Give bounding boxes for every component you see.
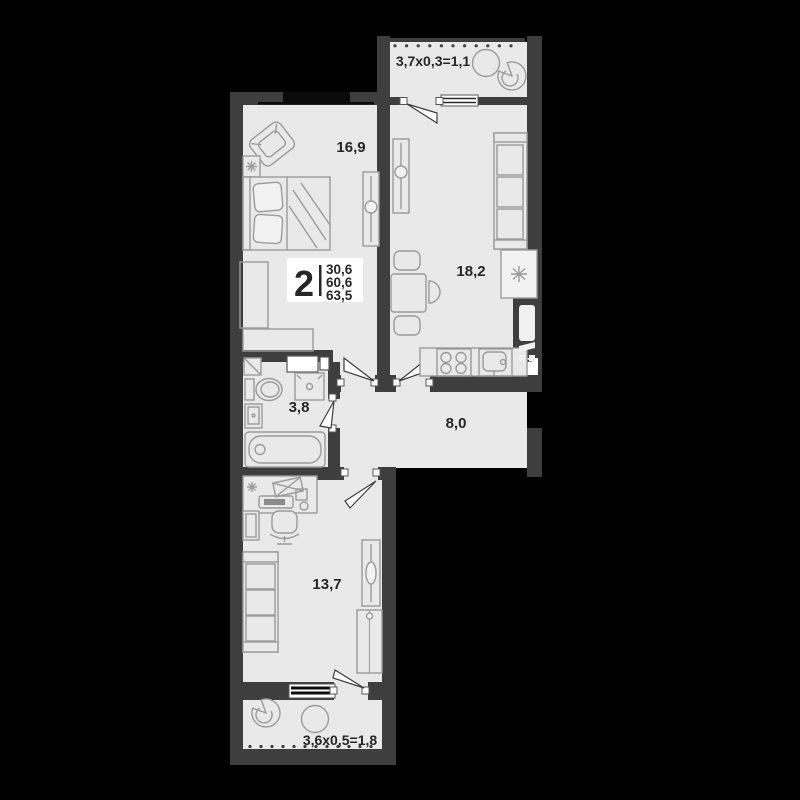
corner-shelf <box>244 358 261 375</box>
kitchen-counter <box>420 348 527 376</box>
side-shelf <box>243 511 259 540</box>
floorplan-canvas: 16,9 18,2 3,8 8,0 13,7 3,7х0,3=1,1 3,6х0… <box>0 0 800 800</box>
hallway-floor <box>340 390 527 468</box>
floorplan-svg: 16,9 18,2 3,8 8,0 13,7 3,7х0,3=1,1 3,6х0… <box>0 0 800 800</box>
washing-machine <box>295 373 324 400</box>
living-room-area-label: 13,7 <box>312 576 341 593</box>
kitchen-area-label: 18,2 <box>456 263 485 280</box>
fridge <box>501 250 537 298</box>
mirror-wardrobe <box>362 540 380 606</box>
hallway-area-label: 8,0 <box>446 415 467 432</box>
balcony-top-dimension-label: 3,7х0,3=1,1 <box>396 53 471 69</box>
tall-cabinet <box>393 139 409 213</box>
balcony-table <box>302 706 329 733</box>
mirror-cabinet <box>363 172 379 246</box>
double-bed <box>243 177 330 250</box>
kitchen-balcony-window <box>441 95 478 106</box>
living-balcony-window <box>289 684 335 698</box>
area-value-3: 63,5 <box>326 288 353 303</box>
sofa <box>243 552 278 652</box>
bedroom-window <box>283 92 350 103</box>
title-block-divider <box>319 265 322 296</box>
toilet <box>245 379 282 401</box>
plant-stand <box>243 156 260 177</box>
bathroom-area-label: 3,8 <box>289 399 310 416</box>
balcony-table <box>473 50 500 77</box>
title-block: 2 30,6 60,6 63,5 <box>287 258 363 304</box>
room-count: 2 <box>294 263 314 304</box>
kitchen-sofa <box>494 133 527 249</box>
balcony-bottom-dimension-label: 3,6х0,5=1,8 <box>303 732 378 748</box>
bathtub <box>245 432 325 467</box>
desk <box>243 476 317 513</box>
vent-niche <box>287 356 329 372</box>
bedroom-area-label: 16,9 <box>336 139 365 156</box>
bathroom-sink <box>245 404 262 428</box>
